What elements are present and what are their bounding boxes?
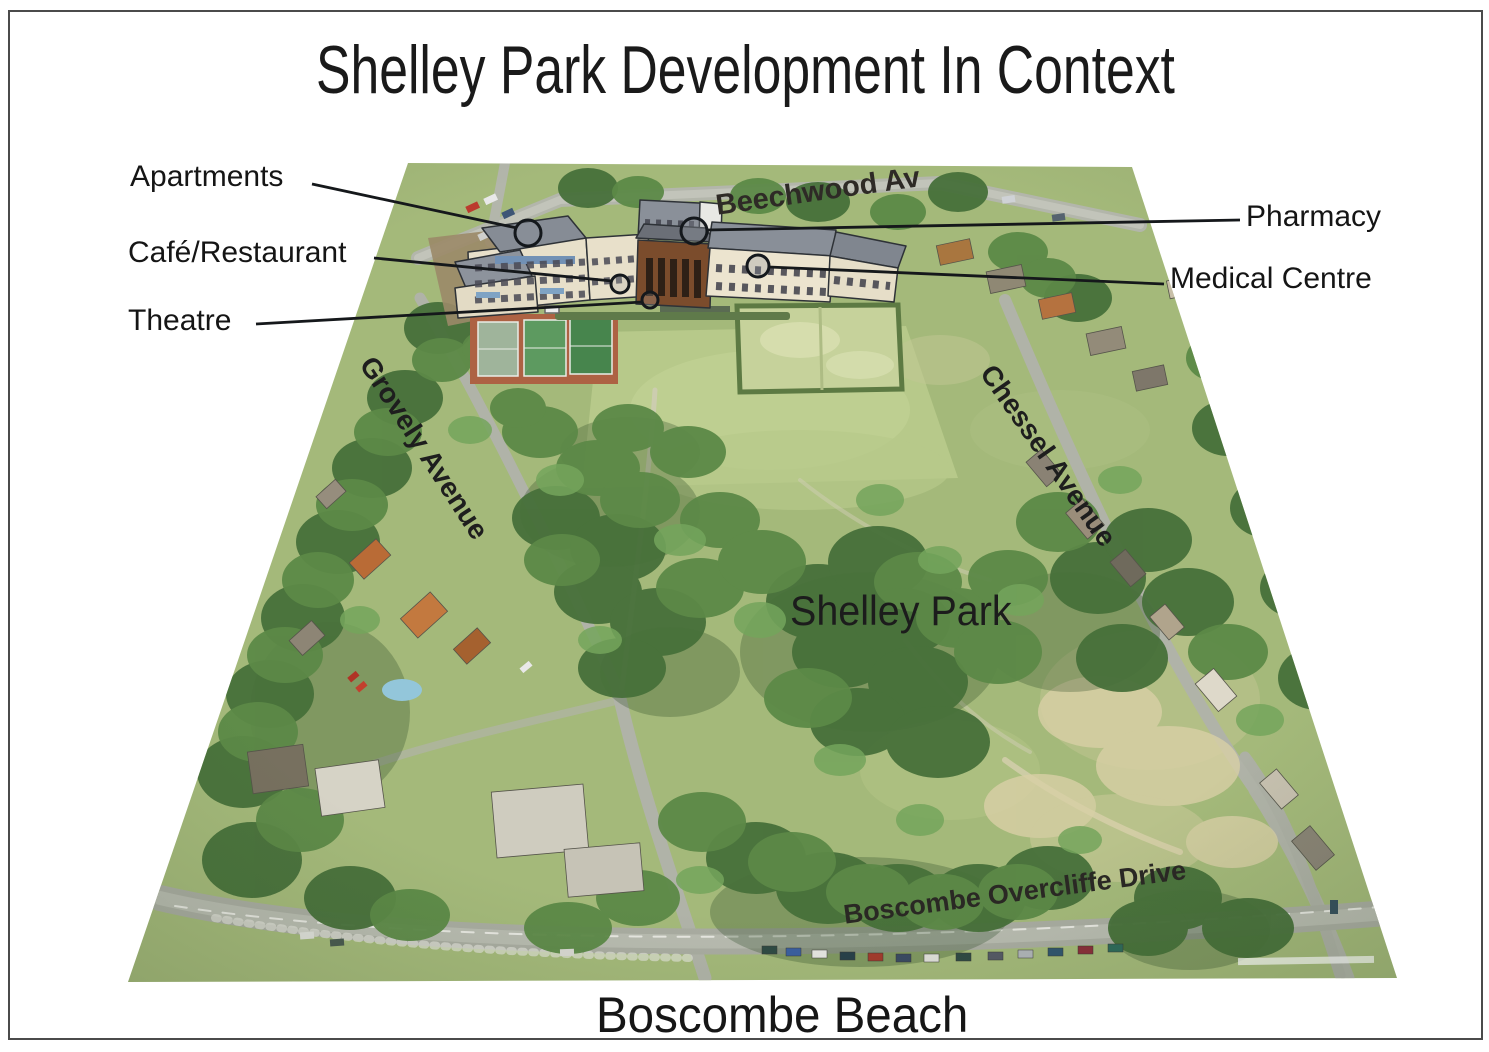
callout-pharmacy: Pharmacy xyxy=(1246,202,1381,232)
page-title: Shelley Park Development In Context xyxy=(316,36,1175,104)
callout-theatre: Theatre xyxy=(128,306,231,336)
callout-medical-centre: Medical Centre xyxy=(1170,264,1372,294)
park-name-label: Shelley Park xyxy=(790,590,1012,632)
aerial-photo xyxy=(0,0,1489,1052)
beach-label: Boscombe Beach xyxy=(596,990,968,1040)
callout-apartments: Apartments xyxy=(130,162,283,192)
callout-cafe-restaurant: Café/Restaurant xyxy=(128,238,346,268)
poster-canvas: Shelley Park Development In Context xyxy=(0,0,1489,1052)
